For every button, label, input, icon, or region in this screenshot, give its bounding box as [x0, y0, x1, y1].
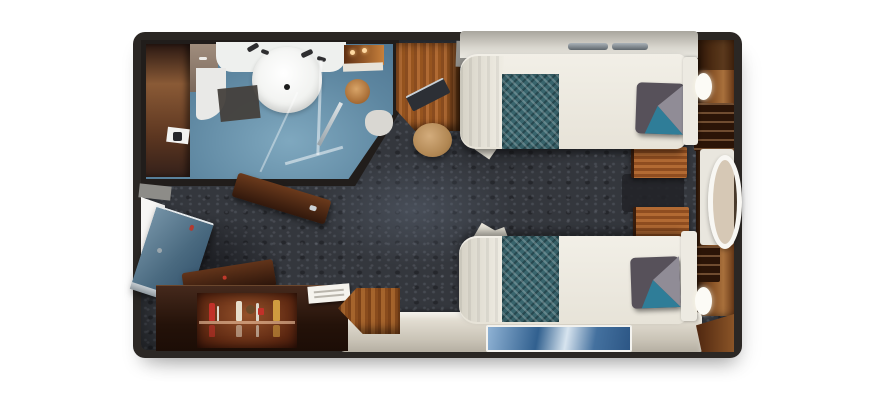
headboard [683, 57, 698, 145]
seascape-artwork [486, 325, 632, 352]
wall-dresser [694, 103, 734, 151]
toilet [365, 110, 393, 136]
wardrobe-knob [309, 205, 317, 212]
headboard [681, 231, 697, 321]
nightstand [631, 147, 687, 178]
duvet-fold [460, 56, 504, 147]
wall-dresser [694, 246, 720, 282]
minibar-glass-shelf [199, 321, 295, 324]
duvet-fold [459, 238, 504, 322]
red-bottle [258, 308, 264, 315]
glass-stem [217, 306, 219, 321]
notepad-line [314, 294, 344, 299]
amber-bottle [273, 300, 280, 321]
teal-bed-runner [502, 236, 559, 322]
bottle-reflection [273, 325, 280, 337]
shelf-light-icon [362, 48, 367, 53]
shelf-rail [612, 43, 648, 50]
shower-stool [345, 79, 370, 104]
shelf-rail [568, 43, 608, 50]
porthole-ring [708, 155, 742, 249]
cream-bottle [236, 301, 242, 321]
red-bottle [209, 303, 215, 321]
washbasin [252, 47, 322, 113]
sink-drain [284, 84, 290, 90]
glass-shelf [343, 62, 383, 71]
notepad [307, 283, 350, 304]
wardrobe-detail [222, 275, 227, 280]
shelf-light-icon [350, 50, 355, 55]
bottle-reflection [209, 325, 215, 337]
snack-jar [246, 305, 255, 314]
teal-bed-runner [502, 74, 559, 149]
door-sign [189, 224, 195, 231]
accent-pillow [635, 82, 685, 135]
oval-wall-lamp [695, 73, 712, 100]
bottle-reflection [256, 325, 259, 337]
window-wall-cabinet [696, 40, 734, 70]
toilet-paper-holder [173, 132, 182, 141]
stateroom-floorplan [0, 0, 881, 400]
bottle-reflection [236, 325, 242, 337]
vanity-seat [217, 85, 260, 122]
oval-wall-lamp [695, 287, 712, 315]
door-handle [199, 57, 207, 60]
accent-pillow [630, 256, 681, 309]
bathroom-door-panel [146, 44, 190, 177]
notepad-line [314, 289, 344, 294]
round-stool [413, 123, 452, 157]
door-peephole-icon [156, 247, 162, 253]
